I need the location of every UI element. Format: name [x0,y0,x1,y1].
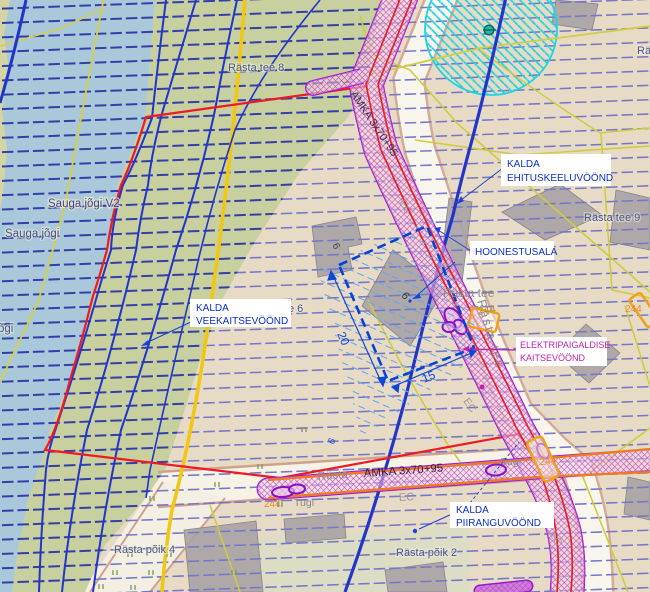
svg-text:244: 244 [264,499,281,510]
svg-text:Rästa: Rästa [637,45,650,57]
svg-text:KALDA: KALDA [507,159,540,170]
svg-text:Tugi: Tugi [501,456,521,468]
svg-text:HOONESTUSALA: HOONESTUSALA [475,247,558,258]
svg-text:VEEKAITSEVÖÖND: VEEKAITSEVÖÖND [196,315,288,327]
svg-text:Rästa tee 9: Rästa tee 9 [584,212,640,224]
svg-text:Rästa tee 8: Rästa tee 8 [228,62,284,74]
svg-text:õgi: õgi [0,323,13,335]
svg-text:Sauga jõgi V2: Sauga jõgi V2 [48,198,120,210]
svg-text:ELEKTRIPAIGALDISE: ELEKTRIPAIGALDISE [520,340,610,350]
svg-text:KAITSEVÖÖND: KAITSEVÖÖND [520,353,586,363]
svg-text:Rästa põik 4: Rästa põik 4 [114,544,175,556]
svg-text:KALDA: KALDA [456,505,489,516]
svg-text:Tugi: Tugi [294,497,314,509]
svg-text:Sauga jõgi: Sauga jõgi [5,228,59,240]
svg-text:Rästa: Rästa [317,469,348,483]
svg-text:244: 244 [625,304,642,315]
svg-text:EC: EC [399,491,415,504]
svg-text:PIIRANGUVÖÖND: PIIRANGUVÖÖND [456,517,541,529]
svg-text:Rästa põik 2: Rästa põik 2 [396,547,457,559]
svg-text:KALDA: KALDA [196,303,229,314]
svg-text:244: 244 [477,304,497,318]
svg-text:244: 244 [539,455,557,468]
svg-text:EHITUSKEELUVÖÖND: EHITUSKEELUVÖÖND [507,172,613,184]
